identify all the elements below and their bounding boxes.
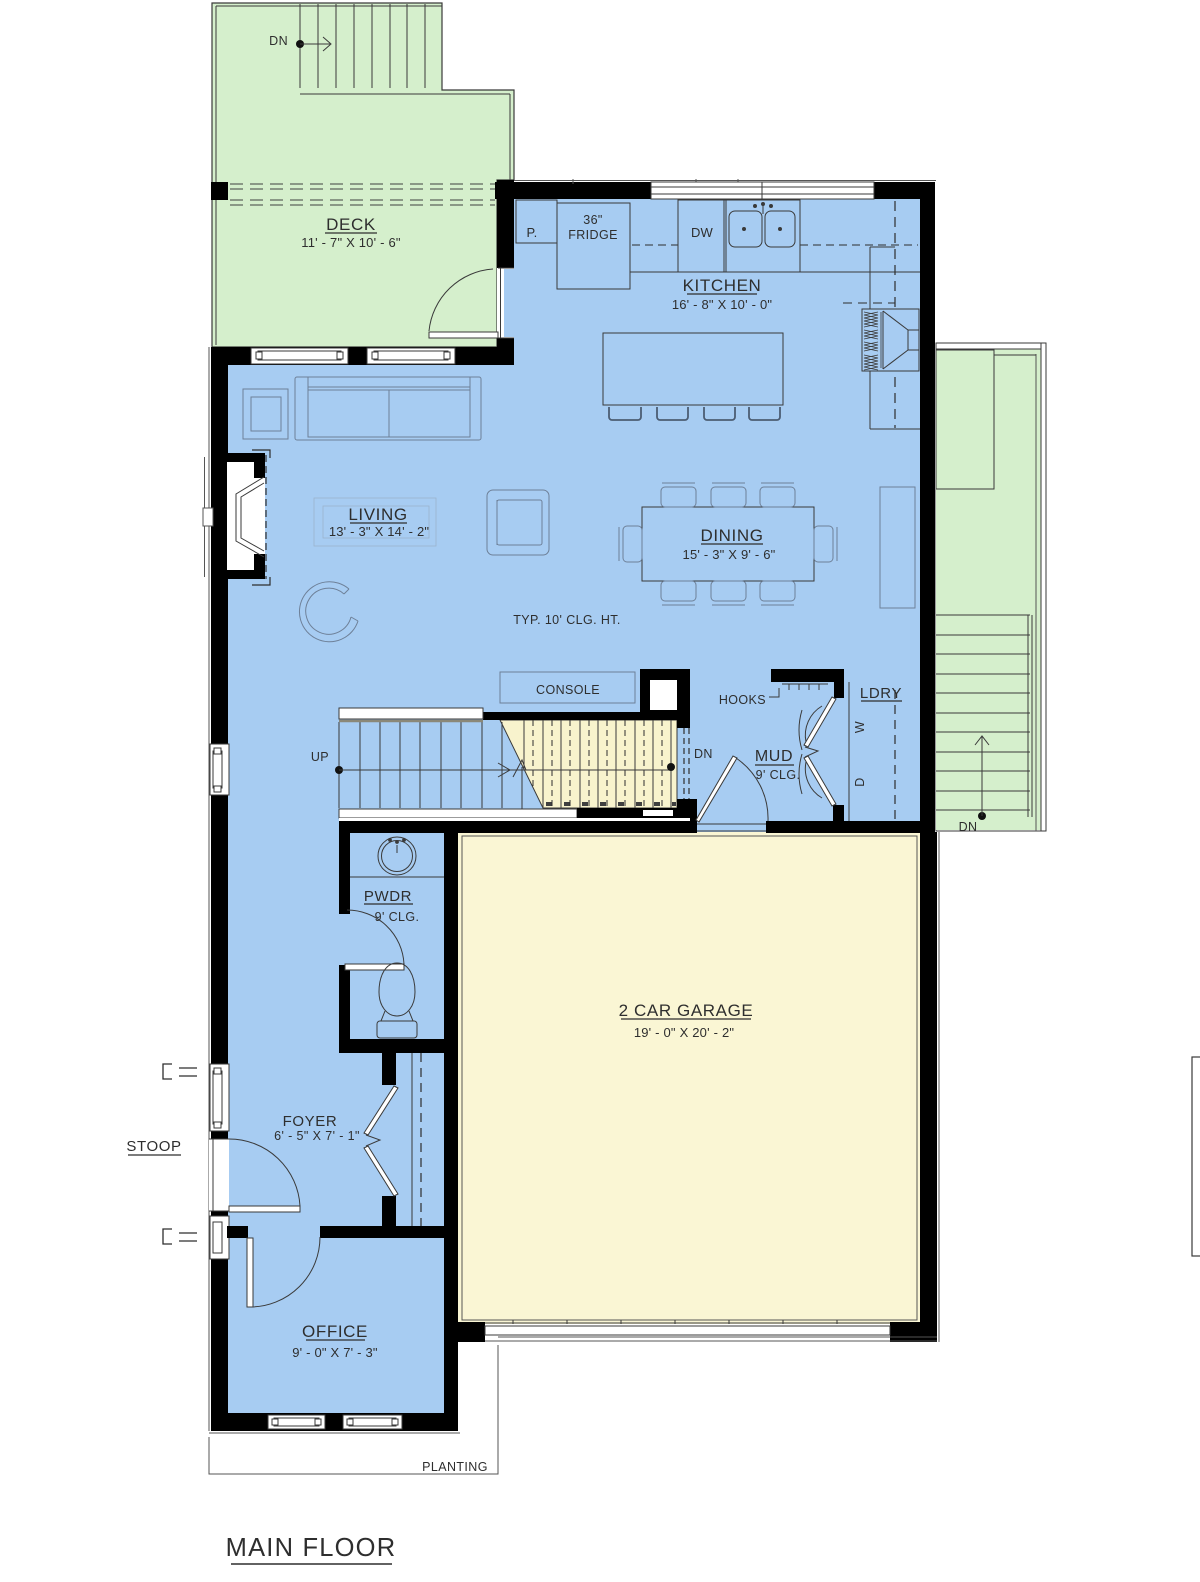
svg-text:9' - 0" X 7' - 3": 9' - 0" X 7' - 3"	[292, 1345, 378, 1360]
svg-text:9' CLG.: 9' CLG.	[375, 910, 420, 924]
svg-text:TYP. 10' CLG. HT.: TYP. 10' CLG. HT.	[513, 613, 621, 627]
svg-text:DN: DN	[959, 820, 978, 834]
svg-text:UP: UP	[311, 750, 329, 764]
svg-text:W: W	[853, 721, 867, 733]
svg-text:P.: P.	[526, 225, 537, 240]
svg-text:KITCHEN: KITCHEN	[683, 276, 762, 295]
svg-text:DN: DN	[694, 747, 713, 761]
svg-text:DECK: DECK	[326, 215, 376, 234]
svg-text:11' - 7" X 10' - 6": 11' - 7" X 10' - 6"	[301, 235, 401, 250]
svg-text:2 CAR GARAGE: 2 CAR GARAGE	[619, 1001, 754, 1020]
svg-text:13' - 3" X 14' - 2": 13' - 3" X 14' - 2"	[329, 524, 430, 539]
svg-text:DINING: DINING	[700, 526, 763, 545]
svg-text:9' CLG.: 9' CLG.	[756, 768, 801, 782]
svg-text:HOOKS: HOOKS	[719, 693, 766, 707]
svg-text:19' - 0" X 20' - 2": 19' - 0" X 20' - 2"	[634, 1025, 735, 1040]
svg-text:STOOP: STOOP	[126, 1138, 181, 1155]
svg-text:FOYER: FOYER	[283, 1113, 338, 1130]
svg-text:DW: DW	[691, 225, 714, 240]
svg-text:OFFICE: OFFICE	[302, 1322, 368, 1341]
svg-text:LDRY: LDRY	[860, 685, 902, 702]
svg-text:MUD: MUD	[755, 748, 793, 765]
svg-text:LIVING: LIVING	[348, 505, 407, 524]
svg-text:MAIN FLOOR: MAIN FLOOR	[226, 1534, 397, 1562]
svg-text:16' - 8" X 10' - 0": 16' - 8" X 10' - 0"	[672, 297, 773, 312]
svg-text:CONSOLE: CONSOLE	[536, 683, 600, 697]
svg-text:36": 36"	[583, 213, 603, 227]
svg-text:DN: DN	[269, 34, 288, 48]
svg-text:PLANTING: PLANTING	[422, 1460, 488, 1474]
svg-text:15' - 3" X 9' - 6": 15' - 3" X 9' - 6"	[683, 547, 776, 562]
svg-text:D: D	[853, 777, 867, 786]
svg-text:6' - 5" X 7' - 1": 6' - 5" X 7' - 1"	[274, 1129, 360, 1143]
svg-text:FRIDGE: FRIDGE	[568, 228, 618, 242]
svg-text:PWDR: PWDR	[364, 888, 412, 905]
